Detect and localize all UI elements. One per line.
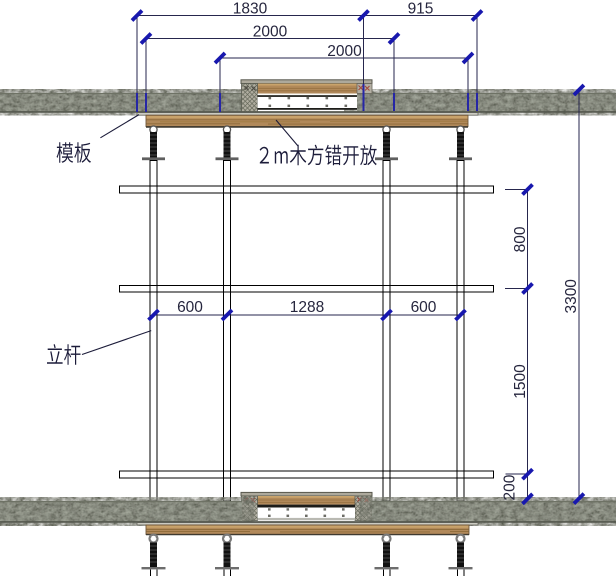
svg-text:600: 600 [177,299,203,316]
svg-text:915: 915 [408,1,434,18]
svg-text:2000: 2000 [253,24,288,41]
svg-text:3300: 3300 [563,279,580,314]
svg-text:600: 600 [411,299,437,316]
svg-text:1830: 1830 [233,1,268,18]
svg-text:1288: 1288 [290,299,324,316]
svg-text:800: 800 [512,226,529,252]
svg-text:1500: 1500 [512,364,529,399]
svg-text:200: 200 [502,474,519,500]
svg-text:2000: 2000 [327,43,362,60]
